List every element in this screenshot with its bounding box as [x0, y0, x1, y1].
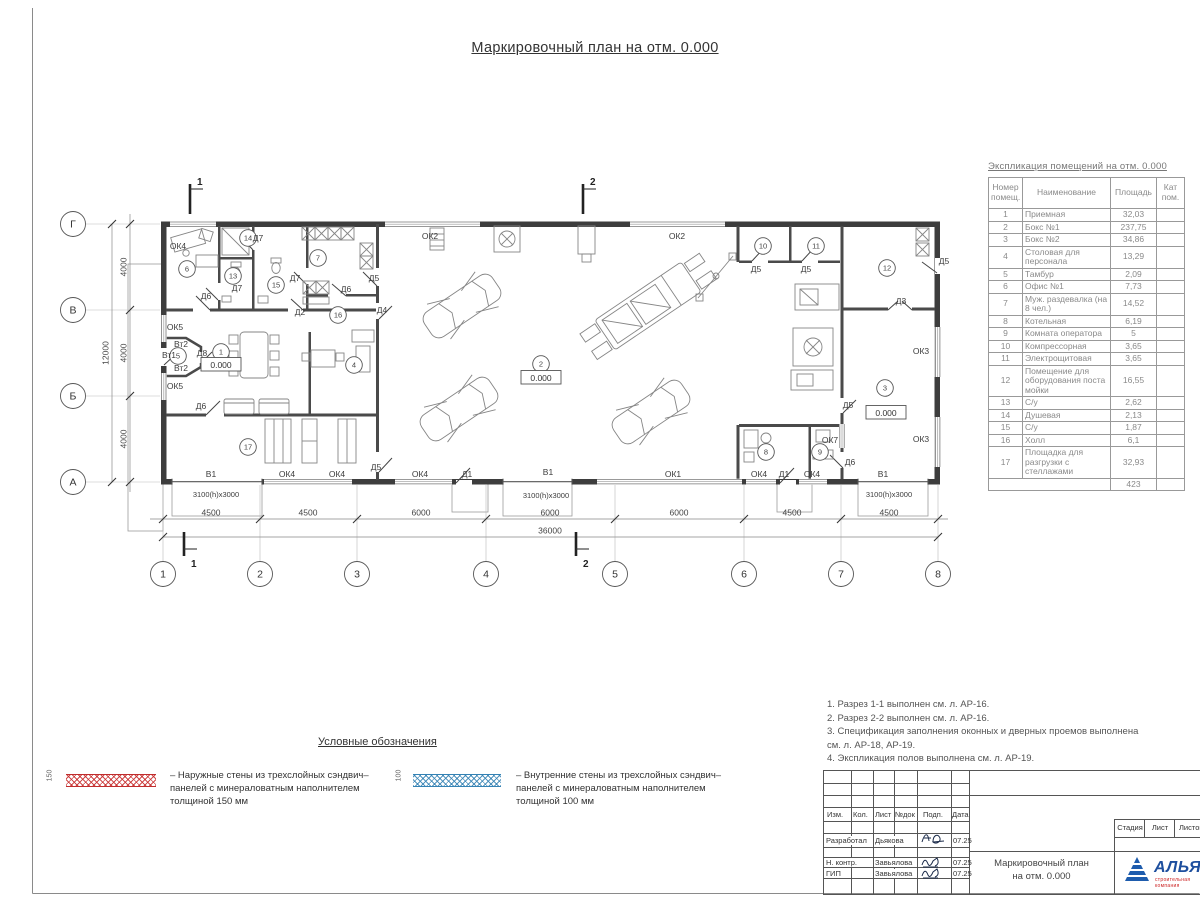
company-logo-icon	[1124, 857, 1151, 883]
plan-label: Д5	[843, 400, 854, 410]
drawing-sheet: ГВБА123456784500450060006000600045004500…	[0, 0, 1200, 900]
room-area: 32,93	[1111, 447, 1157, 479]
plan-label: Д5	[939, 256, 950, 266]
room-area: 1,87	[1111, 422, 1157, 435]
room-name: Столовая для персонала	[1023, 246, 1111, 268]
note-line: 3. Спецификация заполнения оконных и две…	[827, 725, 1138, 739]
company-logo-tagline: строительная компания	[1155, 877, 1200, 889]
signature-icon	[920, 866, 950, 880]
room-number: 17	[244, 443, 252, 452]
plan-label: 3100(h)x3000	[193, 490, 239, 499]
room-num: 7	[989, 293, 1023, 315]
room-num: 5	[989, 268, 1023, 281]
plan-label: ОК2	[422, 231, 439, 241]
car	[416, 266, 507, 347]
plan-label: ОК4	[751, 469, 768, 479]
plan-label: В1	[878, 469, 889, 479]
dimension: 6000	[541, 508, 560, 518]
elevation-value: 0.000	[530, 373, 552, 383]
room-area: 32,03	[1111, 209, 1157, 222]
plan-label: ОК1	[665, 469, 682, 479]
table-row: 15С/у1,87	[989, 422, 1185, 435]
truck-on-lift	[578, 251, 718, 361]
room-area: 6,19	[1111, 315, 1157, 328]
plan-label: ОК3	[913, 346, 930, 356]
room-name: Площадка для разгрузки с стеллажами	[1023, 447, 1111, 479]
room-area: 14,52	[1111, 293, 1157, 315]
plan-label: ОК5	[167, 381, 184, 391]
plan-label: В1	[543, 467, 554, 477]
signature-icon	[920, 831, 950, 845]
car	[413, 369, 504, 450]
room-number: 7	[316, 254, 320, 263]
plan-label: Д5	[801, 264, 812, 274]
title-block: Изм. Кол. Лист №док Подп. Дата Разработа…	[823, 770, 1200, 895]
legend-interior-text: – Внутренние стены из трехслойных сэндви…	[516, 769, 738, 808]
room-name: Электрощитовая	[1023, 353, 1111, 366]
note-line: 2. Разрез 2-2 выполнен см. л. АР-16.	[827, 712, 1138, 726]
room-cat	[1157, 365, 1185, 397]
table-total-row: 423	[989, 478, 1185, 491]
plan-label: Д7	[232, 283, 243, 293]
room-number: 9	[818, 448, 822, 457]
room-num: 1	[989, 209, 1023, 222]
room-name: Компрессорная	[1023, 340, 1111, 353]
interior-wall-swatch	[413, 774, 501, 787]
room-area: 34,86	[1111, 234, 1157, 247]
col-list: Лист	[875, 810, 891, 819]
dimension: 4000	[119, 343, 129, 362]
furniture	[171, 226, 929, 463]
table-row: 7Муж. раздевалка (на 8 чел.)14,52	[989, 293, 1185, 315]
total-spacer	[989, 478, 1111, 491]
room-area: 2,62	[1111, 397, 1157, 410]
room-area: 7,73	[1111, 281, 1157, 294]
room-area: 5	[1111, 328, 1157, 341]
room-number: 13	[229, 272, 237, 281]
table-header-row: Номер помещ. Наименование Площадь Кат по…	[989, 178, 1185, 209]
sign-date-3: 07.25	[953, 869, 972, 878]
plan-label: Д3	[896, 296, 907, 306]
list-col: Лист	[1146, 823, 1174, 832]
explication-table: Номер помещ. Наименование Площадь Кат по…	[988, 177, 1185, 491]
note-line: 1. Разрез 1-1 выполнен см. л. АР-16.	[827, 698, 1138, 712]
car	[605, 372, 696, 453]
room-name: Душевая	[1023, 409, 1111, 422]
dimension: 4500	[299, 508, 318, 518]
room-number: 3	[883, 384, 887, 393]
total-area: 423	[1111, 478, 1157, 491]
table-row: 5Тамбур2,09	[989, 268, 1185, 281]
plan-label: Д6	[341, 284, 352, 294]
room-cat	[1157, 447, 1185, 479]
room-number: 1	[219, 348, 223, 357]
plan-label: Д1	[779, 469, 790, 479]
plan-label: Д5	[369, 273, 380, 283]
legend-title: Условные обозначения	[318, 736, 437, 748]
col-number: Номер помещ.	[989, 178, 1023, 209]
room-num: 14	[989, 409, 1023, 422]
sign-name-1: Дьякова	[875, 836, 904, 845]
dimension: 4500	[202, 508, 221, 518]
room-number: 15	[272, 281, 280, 290]
room-area: 2,09	[1111, 268, 1157, 281]
doc-title: Маркировочный план на отм. 0.000	[970, 857, 1113, 883]
room-number: 5	[176, 352, 180, 361]
plan-label: Д4	[377, 305, 388, 315]
company-logo-text: АЛЬЯНС	[1154, 859, 1200, 877]
notes: 1. Разрез 1-1 выполнен см. л. АР-16.2. Р…	[827, 698, 1138, 766]
table-row: 16Холл6,1	[989, 434, 1185, 447]
room-name: Помещение для оборудования поста мойки	[1023, 365, 1111, 397]
grid-number: 5	[612, 569, 618, 581]
room-number: 10	[759, 242, 767, 251]
table-row: 6Офис №17,73	[989, 281, 1185, 294]
room-number: 4	[352, 361, 356, 370]
room-number: 8	[764, 448, 768, 457]
plan-label: 3100(h)x3000	[866, 490, 912, 499]
room-name: Офис №1	[1023, 281, 1111, 294]
sign-role-3: ГИП	[826, 869, 841, 878]
plan-label: ОК4	[279, 469, 296, 479]
table-row: 13С/у2,62	[989, 397, 1185, 410]
room-name: Холл	[1023, 434, 1111, 447]
room-area: 237,75	[1111, 221, 1157, 234]
grid-number: 6	[741, 569, 747, 581]
room-area: 13,29	[1111, 246, 1157, 268]
room-area: 16,55	[1111, 365, 1157, 397]
grid-number: 3	[354, 569, 360, 581]
plan-label: ОК2	[669, 231, 686, 241]
elevation-value: 0.000	[210, 360, 232, 370]
room-cat	[1157, 315, 1185, 328]
sign-date-2: 07.25	[953, 858, 972, 867]
room-number: 14	[244, 234, 252, 243]
room-number: 12	[883, 264, 891, 273]
room-cat	[1157, 328, 1185, 341]
room-name: Котельная	[1023, 315, 1111, 328]
plan-label: Вт1	[162, 350, 176, 360]
grid-number: 4	[483, 569, 489, 581]
room-num: 3	[989, 234, 1023, 247]
col-podp: Подп.	[923, 810, 943, 819]
room-name: С/у	[1023, 422, 1111, 435]
sign-name-2: Завьялова	[875, 858, 912, 867]
room-cat	[1157, 293, 1185, 315]
room-num: 10	[989, 340, 1023, 353]
table-row: 17Площадка для разгрузки с стеллажами32,…	[989, 447, 1185, 479]
legend-dim-150: 150	[46, 770, 53, 782]
room-number: 6	[185, 265, 189, 274]
sign-name-3: Завьялова	[875, 869, 912, 878]
plan-label: Вт2	[174, 339, 188, 349]
table-row: 14Душевая2,13	[989, 409, 1185, 422]
plan-label: Д6	[845, 457, 856, 467]
table-row: 10Компрессорная3,65	[989, 340, 1185, 353]
room-cat	[1157, 434, 1185, 447]
legend-exterior-text: – Наружные стены из трехслойных сэндвич–…	[170, 769, 392, 808]
plan-label: ОК4	[804, 469, 821, 479]
room-name: С/у	[1023, 397, 1111, 410]
dimension: 6000	[670, 508, 689, 518]
section-number: 1	[191, 559, 197, 570]
table-row: 3Бокс №234,86	[989, 234, 1185, 247]
stage-col: Стадия	[1116, 823, 1144, 832]
table-row: 12Помещение для оборудования поста мойки…	[989, 365, 1185, 397]
room-cat	[1157, 268, 1185, 281]
col-name: Наименование	[1023, 178, 1111, 209]
plan-annotations: ГВБА123456784500450060006000600045004500…	[61, 177, 951, 587]
room-num: 4	[989, 246, 1023, 268]
room-name: Комната оператора	[1023, 328, 1111, 341]
room-num: 8	[989, 315, 1023, 328]
col-izm: Изм.	[827, 810, 843, 819]
plan-label: Д6	[201, 291, 212, 301]
room-num: 12	[989, 365, 1023, 397]
plan-label: ОК4	[170, 241, 187, 251]
col-area: Площадь	[1111, 178, 1157, 209]
total-cat	[1157, 478, 1185, 491]
grid-number: 2	[257, 569, 263, 581]
sign-role-2: Н. контр.	[826, 858, 857, 867]
room-cat	[1157, 340, 1185, 353]
room-num: 9	[989, 328, 1023, 341]
plan-label: Д7	[290, 273, 301, 283]
room-cat	[1157, 422, 1185, 435]
plan-label: Д8	[197, 348, 208, 358]
explication-title: Экспликация помещений на отм. 0.000	[988, 161, 1167, 172]
plan-label: ОК7	[822, 435, 839, 445]
note-line: см. л. АР-18, АР-19.	[827, 739, 1138, 753]
room-num: 11	[989, 353, 1023, 366]
room-number: 16	[334, 311, 342, 320]
table-row: 1Приемная32,03	[989, 209, 1185, 222]
room-cat	[1157, 397, 1185, 410]
table-row: 2Бокс №1237,75	[989, 221, 1185, 234]
table-row: 8Котельная6,19	[989, 315, 1185, 328]
dimension: 6000	[412, 508, 431, 518]
room-cat	[1157, 209, 1185, 222]
dimension-total: 12000	[101, 341, 111, 365]
grid-number: 8	[935, 569, 941, 581]
room-name: Бокс №1	[1023, 221, 1111, 234]
room-name: Тамбур	[1023, 268, 1111, 281]
plan-label: ОК4	[412, 469, 429, 479]
col-category: Кат пом.	[1157, 178, 1185, 209]
room-area: 3,65	[1111, 353, 1157, 366]
room-cat	[1157, 234, 1185, 247]
room-num: 13	[989, 397, 1023, 410]
room-area: 6,1	[1111, 434, 1157, 447]
grid-number: 1	[160, 569, 166, 581]
grid-letter: В	[69, 305, 76, 317]
plan-label: ОК3	[913, 434, 930, 444]
plan-label: 3100(h)x3000	[523, 491, 569, 500]
grid-letter: Г	[70, 219, 76, 231]
section-number: 2	[583, 559, 589, 570]
plan-label: Д6	[196, 401, 207, 411]
dimension: 4500	[783, 508, 802, 518]
room-num: 17	[989, 447, 1023, 479]
elevation-value: 0.000	[875, 408, 897, 418]
plan-label: Д5	[371, 462, 382, 472]
room-cat	[1157, 281, 1185, 294]
col-ndok: №док	[895, 810, 915, 819]
room-cat	[1157, 353, 1185, 366]
table-row: 4Столовая для персонала13,29	[989, 246, 1185, 268]
plan-label: ОК4	[329, 469, 346, 479]
room-cat	[1157, 246, 1185, 268]
plan-label: Д1	[462, 469, 473, 479]
page-title: Маркировочный план на отм. 0.000	[420, 40, 770, 56]
room-num: 15	[989, 422, 1023, 435]
room-area: 3,65	[1111, 340, 1157, 353]
room-num: 2	[989, 221, 1023, 234]
plan-label: В1	[206, 469, 217, 479]
section-number: 1	[197, 177, 203, 188]
plan-label: Д5	[751, 264, 762, 274]
note-line: 4. Экспликация полов выполнена см. л. АР…	[827, 752, 1138, 766]
dimension: 4000	[119, 257, 129, 276]
exterior-wall-swatch	[66, 774, 156, 787]
plan-label: Д2	[295, 307, 306, 317]
dimension: 4500	[880, 508, 899, 518]
room-number: 11	[812, 242, 820, 251]
room-name: Приемная	[1023, 209, 1111, 222]
plan-label: Д7	[253, 233, 264, 243]
col-kol: Кол.	[853, 810, 868, 819]
room-cat	[1157, 409, 1185, 422]
room-cat	[1157, 221, 1185, 234]
section-number: 2	[590, 177, 596, 188]
room-area: 2,13	[1111, 409, 1157, 422]
room-num: 6	[989, 281, 1023, 294]
room-name: Бокс №2	[1023, 234, 1111, 247]
plan-label: Вт2	[174, 363, 188, 373]
sign-date-1: 07.25	[953, 836, 972, 845]
grid-letter: Б	[70, 391, 77, 403]
room-number: 2	[539, 360, 543, 369]
grid-number: 7	[838, 569, 844, 581]
dimension-total: 36000	[538, 526, 562, 536]
room-num: 16	[989, 434, 1023, 447]
sign-role-1: Разработал	[826, 836, 867, 845]
plan-label: ОК5	[167, 322, 184, 332]
room-name: Муж. раздевалка (на 8 чел.)	[1023, 293, 1111, 315]
col-data: Дата	[952, 810, 969, 819]
table-row: 9Комната оператора5	[989, 328, 1185, 341]
legend-dim-100: 100	[395, 770, 402, 782]
grid-letter: А	[69, 477, 76, 489]
dimension: 4000	[119, 429, 129, 448]
table-row: 11Электрощитовая3,65	[989, 353, 1185, 366]
listov-col: Листов	[1179, 823, 1200, 832]
